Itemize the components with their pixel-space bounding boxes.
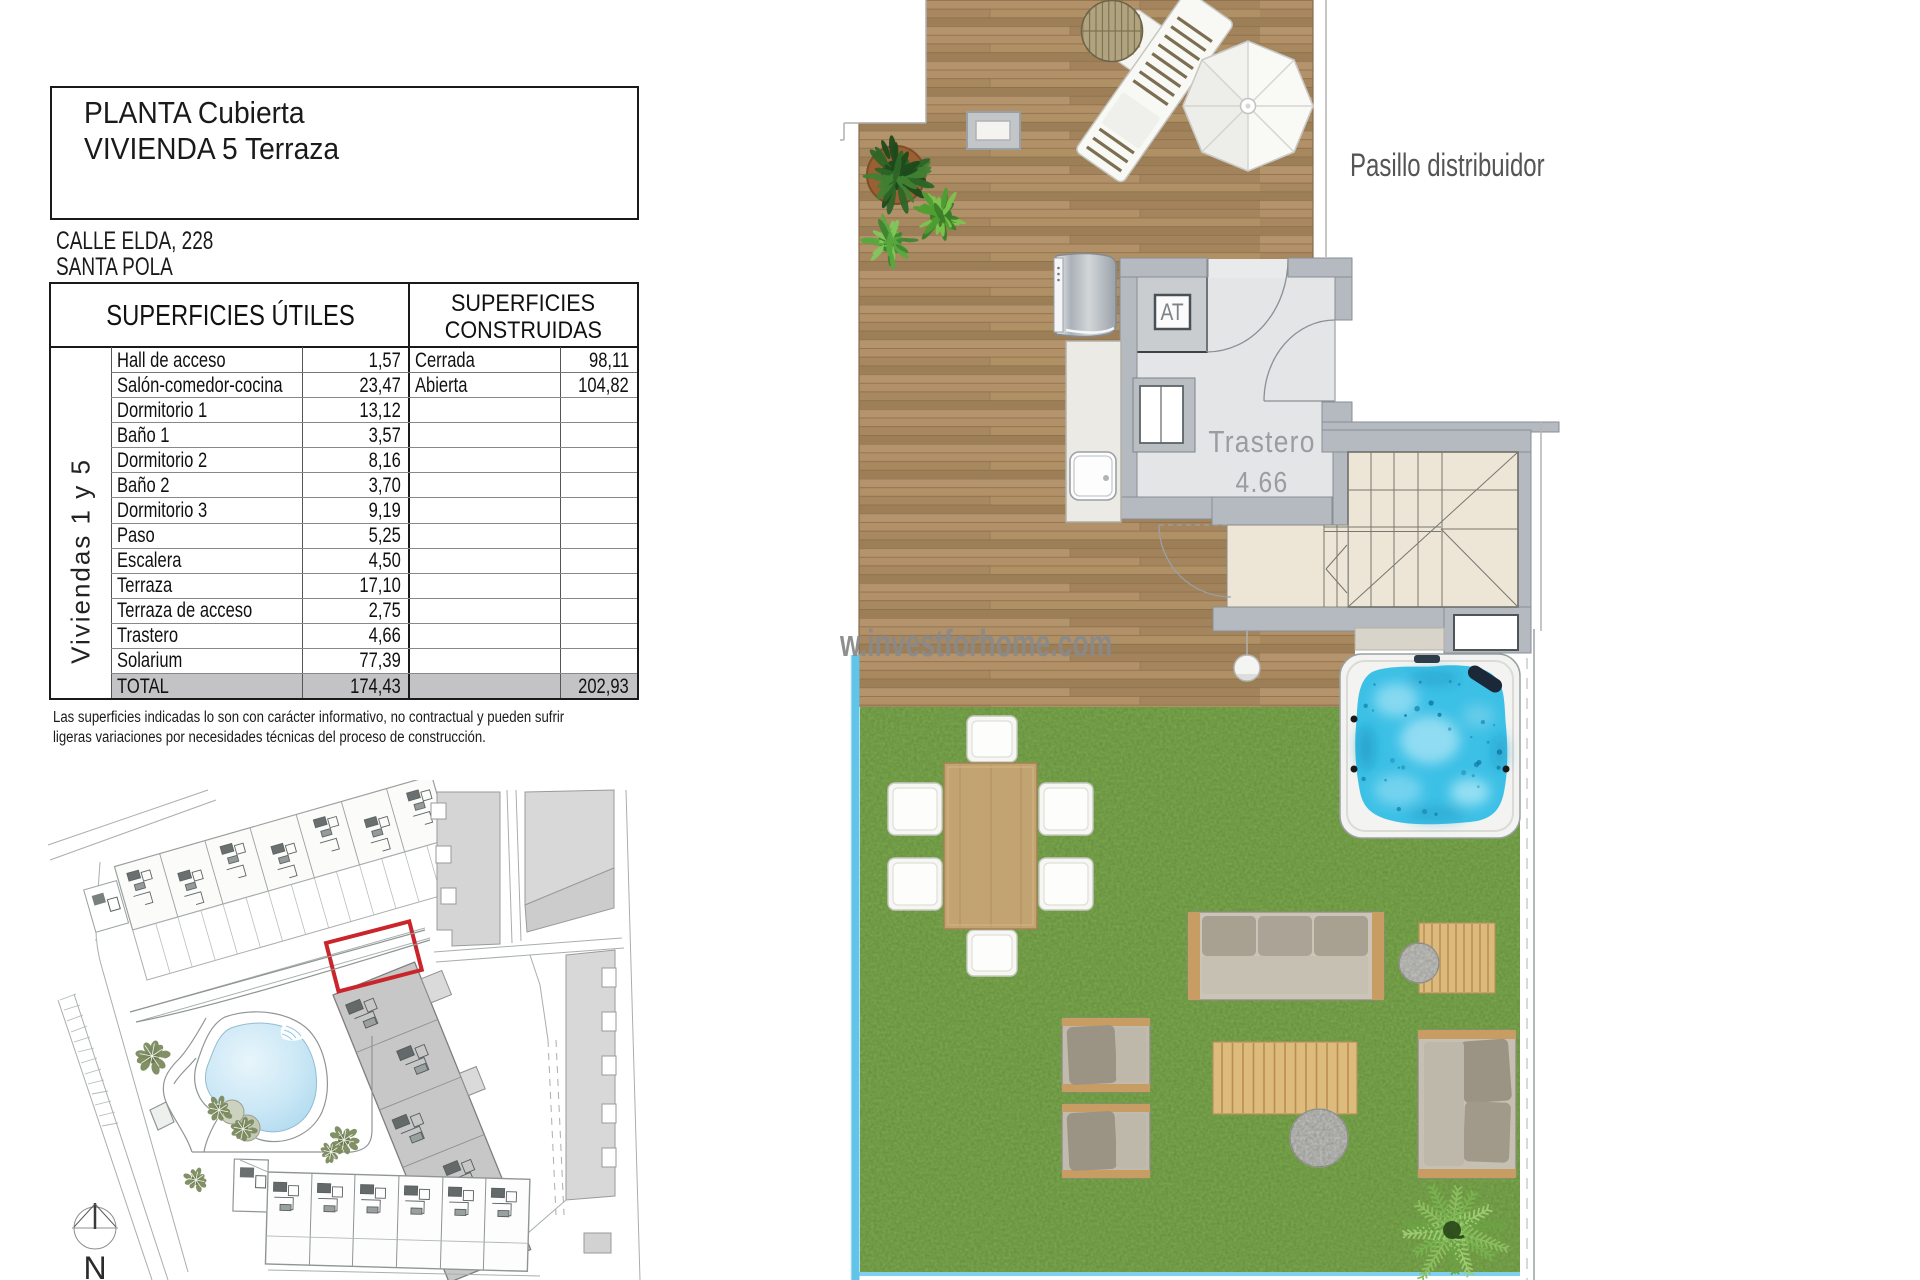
- svg-text:Pasillo distribuidor: Pasillo distribuidor: [1350, 147, 1545, 183]
- svg-text:w.investforhome.com: w.investforhome.com: [840, 621, 1112, 664]
- svg-text:4.66: 4.66: [1235, 466, 1288, 498]
- svg-text:Trastero: Trastero: [1208, 425, 1315, 459]
- svg-text:AT: AT: [1160, 298, 1183, 326]
- svg-text:N: N: [83, 1250, 106, 1280]
